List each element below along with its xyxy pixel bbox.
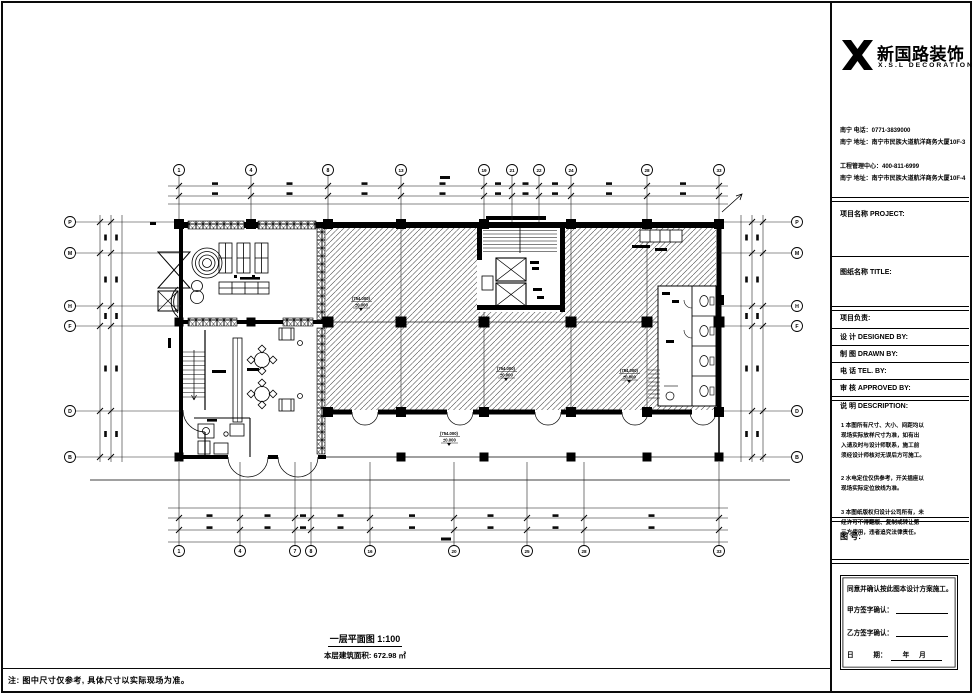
- grid-bubble: 7: [290, 546, 301, 557]
- svg-text:28: 28: [644, 168, 650, 173]
- field-title: 图纸名称 TITLE:: [840, 267, 892, 277]
- field-approved: 审 核 APPROVED BY:: [840, 383, 911, 393]
- company-logo-icon: [840, 38, 874, 72]
- contact-block-1: 南宁 电话：0771-3839000 南宁 地址：南宁市民族大道航洋商务大厦10…: [840, 125, 965, 149]
- lounge-furniture: [183, 328, 303, 454]
- floor-plan: 1481319212224283314781620252833PMHFDBPMH…: [0, 0, 973, 694]
- svg-text:20: 20: [451, 549, 457, 554]
- svg-text:B: B: [795, 455, 799, 461]
- party-a-label: 甲方签字确认：: [847, 607, 893, 614]
- field-tel: 电 话 TEL. BY:: [840, 366, 887, 376]
- svg-text:8: 8: [310, 549, 313, 555]
- svg-text:P: P: [68, 220, 72, 226]
- drawing-sheet: 1481319212224283314781620252833PMHFDBPMH…: [0, 0, 973, 694]
- field-designed: 设 计 DESIGNED BY:: [840, 332, 908, 342]
- svg-text:±0.000: ±0.000: [500, 373, 513, 378]
- field-description: 说 明 DESCRIPTION:: [840, 401, 908, 411]
- svg-text:4: 4: [250, 168, 253, 174]
- grid-bubble: F: [65, 321, 76, 332]
- grid-bubble: 1: [174, 165, 185, 176]
- grid-bubble: B: [792, 452, 803, 463]
- field-drawn: 制 图 DRAWN BY:: [840, 349, 898, 359]
- contact-phone: 南宁 电话：0771-3839000: [840, 125, 965, 137]
- grid-bubble: 4: [246, 165, 257, 176]
- divider: [832, 345, 969, 346]
- grid-bubble: 21: [507, 165, 518, 176]
- grid-bubble: 22: [534, 165, 545, 176]
- contact-address-1: 南宁 地址：南宁市民族大道航洋商务大厦10F-3: [840, 137, 965, 149]
- doors: [228, 412, 716, 477]
- note-1: 1 本图所有尺寸、大小、间距均以 现场实际放样尺寸为准，如有出 入请及时与设计师…: [841, 421, 963, 461]
- grid-bubble: 28: [642, 165, 653, 176]
- month-label: 月: [919, 652, 926, 659]
- svg-text:±0.000: ±0.000: [443, 438, 456, 443]
- washroom: [648, 286, 716, 406]
- year-label: 年: [903, 652, 910, 659]
- party-b-signature: 乙方签字确认：: [847, 627, 948, 637]
- grid-bubble: P: [792, 217, 803, 228]
- svg-text:25: 25: [524, 549, 530, 554]
- field-drawing-no: 图 号:: [840, 531, 861, 542]
- grid-bubble: M: [792, 248, 803, 259]
- date-blank[interactable]: 年月: [891, 649, 942, 661]
- date-line: 日 期：年月: [847, 649, 942, 661]
- svg-text:1: 1: [178, 549, 181, 555]
- sheet-note: 注: 图中尺寸仅参考, 具体尺寸以实际现场为准。: [8, 675, 189, 686]
- grid-bubble: P: [65, 217, 76, 228]
- svg-text:33: 33: [716, 549, 722, 554]
- contact-block-2: 工程管理中心：400-811-6999 南宁 地址：南宁市民族大道航洋商务大厦1…: [840, 161, 965, 185]
- brand-name-en: X.S.L DECORATION: [878, 62, 973, 69]
- svg-text:(754.000): (754.000): [497, 366, 516, 371]
- grid-bubble: 24: [566, 165, 577, 176]
- grid-bubble: 19: [479, 165, 490, 176]
- svg-text:8: 8: [327, 168, 330, 174]
- svg-text:M: M: [795, 251, 799, 257]
- svg-text:F: F: [795, 324, 798, 330]
- signature-confirm-text: 同意并确认按此图本设计方案施工。: [847, 583, 953, 593]
- grid-bubble: B: [65, 452, 76, 463]
- note-2: 2 水电定位仅供参考，开关插座以 现场实际定位放线为准。: [841, 474, 963, 494]
- divider: [832, 328, 969, 329]
- svg-text:19: 19: [481, 168, 487, 173]
- grid-bubble: 4: [235, 546, 246, 557]
- title-block: 新国路装饰 X.S.L DECORATION 南宁 电话：0771-383900…: [830, 3, 969, 691]
- svg-text:(754.000): (754.000): [352, 296, 371, 301]
- level-mark: (754.000)±0.000: [439, 431, 460, 446]
- divider: [832, 559, 969, 564]
- svg-text:4: 4: [239, 549, 242, 555]
- svg-text:M: M: [68, 251, 72, 257]
- grid-bubble: 16: [365, 546, 376, 557]
- divider: [832, 517, 969, 522]
- grid-bubble: 8: [323, 165, 334, 176]
- grid-bubble: D: [65, 406, 76, 417]
- svg-text:13: 13: [398, 168, 404, 173]
- grid-bubble: 1: [174, 546, 185, 557]
- field-lead: 项目负责:: [840, 313, 870, 323]
- divider: [832, 306, 969, 311]
- svg-text:28: 28: [581, 549, 587, 554]
- grid-bubble: 13: [396, 165, 407, 176]
- grid-bubble: M: [65, 248, 76, 259]
- contact-hotline: 工程管理中心：400-811-6999: [840, 161, 965, 173]
- svg-text:24: 24: [568, 168, 574, 173]
- svg-text:1: 1: [178, 168, 181, 174]
- signature-box: 同意并确认按此图本设计方案施工。 甲方签字确认： 乙方签字确认： 日 期：年月: [840, 575, 958, 670]
- svg-text:B: B: [68, 455, 72, 461]
- grid-bubble: 20: [449, 546, 460, 557]
- grid-bubble: D: [792, 406, 803, 417]
- svg-text:H: H: [795, 304, 799, 310]
- svg-text:±0.000: ±0.000: [623, 375, 636, 380]
- party-a-signature: 甲方签字确认：: [847, 604, 948, 614]
- party-b-label: 乙方签字确认：: [847, 630, 893, 637]
- svg-text:P: P: [795, 220, 799, 226]
- svg-text:(754.000): (754.000): [440, 431, 459, 436]
- description-notes: 1 本图所有尺寸、大小、间距均以 现场实际放样尺寸为准，如有出 入请及时与设计师…: [841, 411, 963, 551]
- grid-bubble: 28: [579, 546, 590, 557]
- date-label: 日 期：: [847, 652, 887, 659]
- svg-text:22: 22: [536, 168, 542, 173]
- grid-bubble: H: [65, 301, 76, 312]
- divider: [832, 197, 969, 202]
- drawing-area-label: 本层建筑面积: 672.98 ㎡: [270, 650, 460, 661]
- svg-text:16: 16: [367, 549, 373, 554]
- grid-bubble: F: [792, 321, 803, 332]
- divider: [832, 256, 969, 257]
- svg-text:21: 21: [509, 168, 515, 173]
- elevator-stair-core: [477, 216, 565, 312]
- svg-text:H: H: [68, 304, 72, 310]
- divider: [832, 379, 969, 380]
- drawing-title: 一层平面图 1:100: [328, 632, 403, 647]
- svg-text:D: D: [795, 409, 799, 415]
- grid-bubble: 8: [306, 546, 317, 557]
- grid-bubble: 33: [714, 165, 725, 176]
- svg-text:D: D: [68, 409, 72, 415]
- drawing-caption: 一层平面图 1:100 本层建筑面积: 672.98 ㎡: [270, 629, 460, 661]
- grid-bubble: H: [792, 301, 803, 312]
- foot-divider: [3, 668, 831, 669]
- grid-bubble: 33: [714, 546, 725, 557]
- party-b-signature-blank[interactable]: [896, 628, 948, 637]
- svg-text:7: 7: [294, 549, 297, 555]
- svg-text:(754.000): (754.000): [620, 368, 639, 373]
- party-a-signature-blank[interactable]: [896, 605, 948, 614]
- svg-text:33: 33: [716, 168, 722, 173]
- contact-address-2: 南宁 地址：南宁市民族大道航洋商务大厦10F-4: [840, 173, 965, 185]
- svg-text:±0.000: ±0.000: [355, 303, 368, 308]
- field-project: 项目名称 PROJECT:: [840, 209, 905, 219]
- divider: [832, 362, 969, 363]
- showroom-furniture: [191, 243, 270, 304]
- svg-text:F: F: [68, 324, 71, 330]
- grid-bubble: 25: [522, 546, 533, 557]
